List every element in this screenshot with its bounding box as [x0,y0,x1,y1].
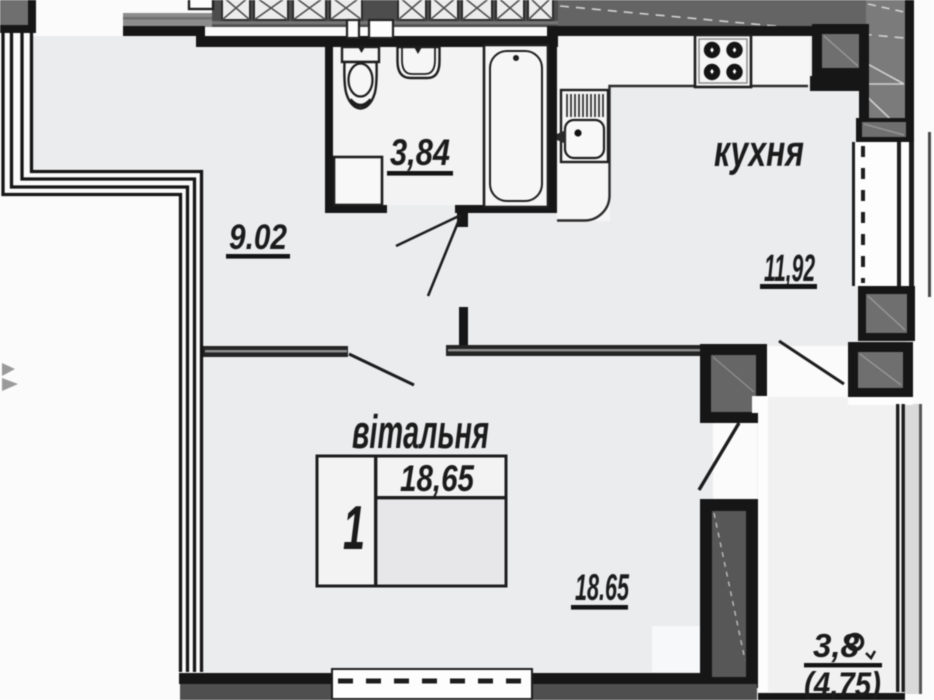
svg-text:18.65: 18.65 [575,567,630,608]
svg-text:3,84: 3,84 [390,132,450,173]
svg-text:1: 1 [343,494,365,563]
svg-text:3,8: 3,8 [813,627,860,664]
svg-text:11,92: 11,92 [764,248,815,290]
svg-text:кухня: кухня [714,127,804,176]
svg-text:9.02: 9.02 [229,218,287,257]
svg-text:18,65: 18,65 [400,458,475,499]
svg-text:вітальня: вітальня [352,405,489,458]
svg-text:(4,75): (4,75) [804,666,881,700]
